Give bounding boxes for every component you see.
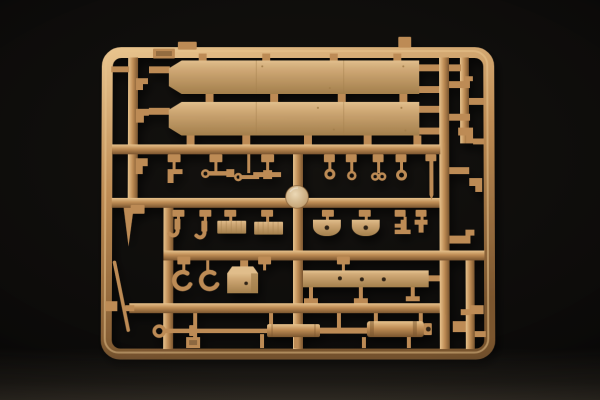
- part-corner-bracket: [168, 169, 183, 183]
- part-eye-bolt: [326, 170, 334, 178]
- runner-vertical-right-lower: [466, 260, 475, 349]
- part-rod-fitting: [105, 301, 117, 311]
- part-fender-panel-upper: [169, 60, 419, 94]
- part-dome-disc: [286, 186, 309, 209]
- part-jack-bracket: [395, 220, 411, 234]
- photo-canvas: Tan injection-molded plastic model kit s…: [0, 0, 600, 400]
- sprue: [105, 37, 490, 354]
- part-tow-hook-2: [196, 221, 207, 238]
- part-ring-pair: [372, 174, 385, 180]
- runner-horizontal-4: [129, 303, 439, 313]
- part-small-bracket: [415, 220, 428, 233]
- part-axle-housing-2: [352, 220, 380, 236]
- sprue-photo: Tan injection-molded plastic model kit s…: [0, 3, 600, 400]
- runner-horizontal-2: [112, 198, 440, 208]
- part-ring-large: [398, 171, 406, 179]
- part-axle-housing-1: [313, 220, 341, 236]
- shaft-eyelet: [154, 326, 164, 336]
- part-fender-panel-lower: [169, 102, 420, 136]
- runner-horizontal-1: [112, 144, 440, 154]
- part-ring-small: [348, 172, 355, 179]
- runner-horizontal-3: [163, 251, 484, 261]
- part-grille-plate-2: [254, 222, 283, 235]
- runner-vertical-right-inner: [439, 57, 450, 349]
- part-long-pin: [429, 161, 433, 200]
- part-skirt-strip: [303, 270, 429, 287]
- part-stowage-box: [227, 266, 258, 293]
- part-bottom-block: [186, 337, 200, 348]
- part-tie-rod-1: [202, 169, 234, 177]
- part-grille-plate-1: [217, 221, 246, 234]
- frame-stub-tab: [398, 37, 411, 48]
- frame-stub-tab: [178, 42, 197, 50]
- runner-vertical-center: [293, 151, 303, 349]
- part-clamp-2: [201, 272, 217, 289]
- part-clamp-1: [174, 272, 190, 289]
